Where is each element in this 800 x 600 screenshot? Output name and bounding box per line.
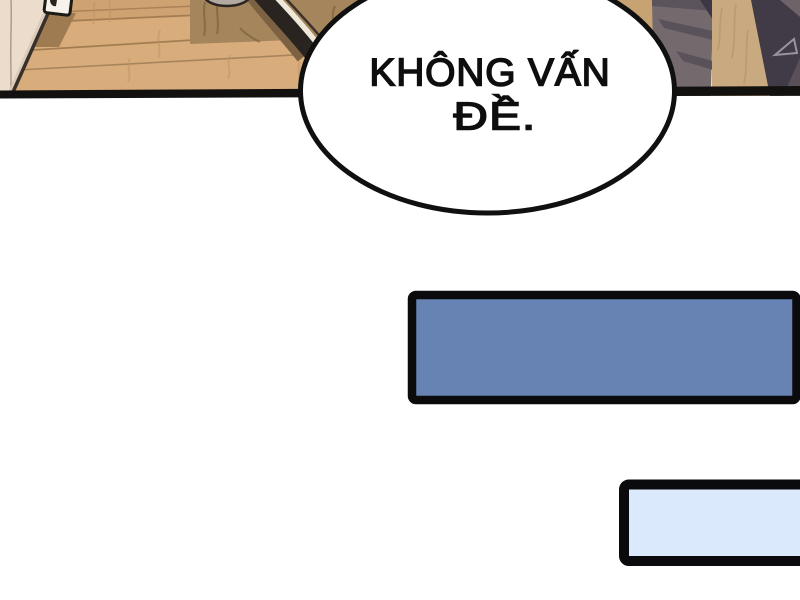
svg-text:ĐỀ.: ĐỀ. <box>454 94 537 139</box>
svg-text:KHÔNG VẤN: KHÔNG VẤN <box>369 51 610 95</box>
